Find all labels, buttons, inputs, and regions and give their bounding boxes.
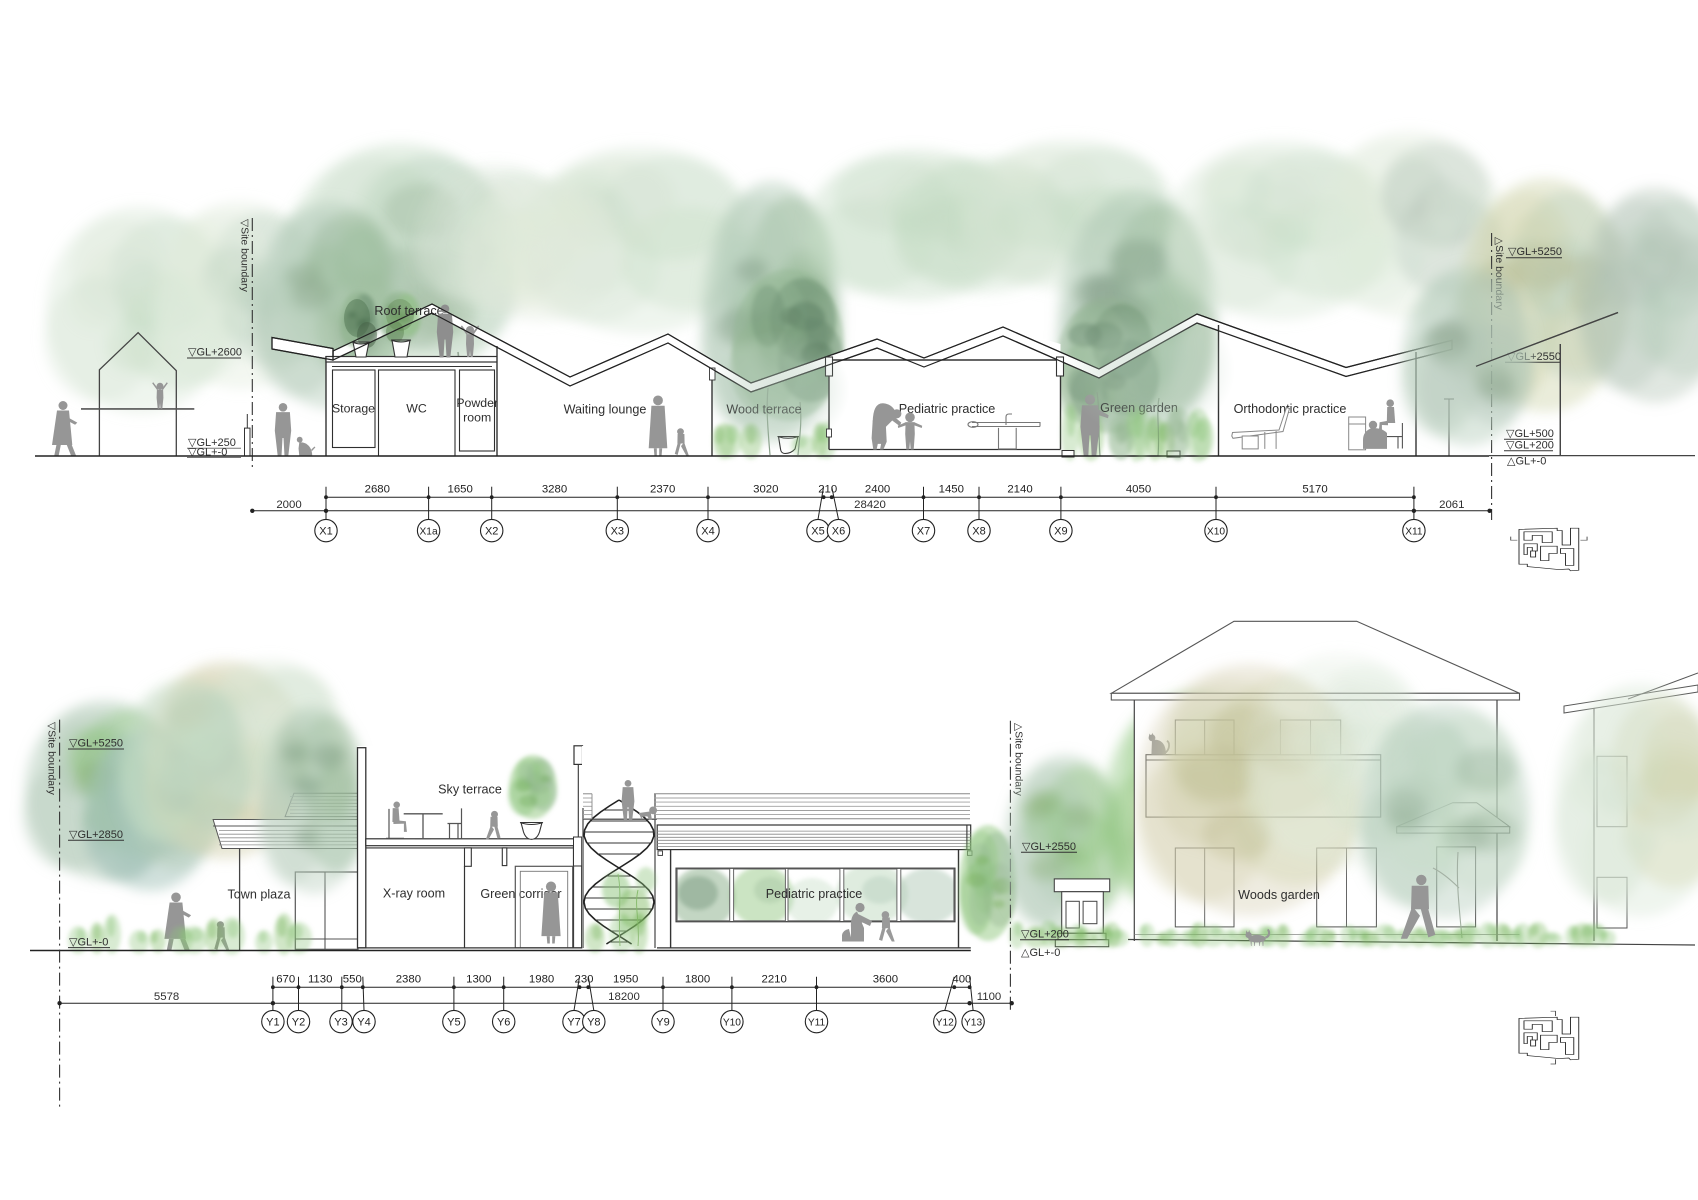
svg-text:▽GL+-0: ▽GL+-0 — [69, 936, 108, 948]
svg-text:2140: 2140 — [1007, 484, 1032, 496]
svg-text:Y9: Y9 — [656, 1017, 669, 1029]
svg-text:28420: 28420 — [854, 499, 886, 511]
svg-text:X9: X9 — [1054, 526, 1067, 538]
svg-text:2680: 2680 — [365, 484, 390, 496]
svg-text:▽GL+200: ▽GL+200 — [1506, 440, 1554, 452]
svg-text:room: room — [463, 411, 491, 425]
svg-text:Y5: Y5 — [447, 1017, 460, 1029]
svg-text:▽GL+5250: ▽GL+5250 — [69, 738, 123, 750]
svg-text:△GL+-0: △GL+-0 — [1507, 456, 1546, 468]
svg-text:X5: X5 — [811, 526, 824, 538]
svg-text:▽GL+5250: ▽GL+5250 — [1508, 246, 1562, 258]
svg-text:X2: X2 — [485, 526, 498, 538]
svg-text:2061: 2061 — [1439, 499, 1464, 511]
svg-text:1300: 1300 — [466, 974, 491, 986]
svg-text:Y6: Y6 — [497, 1017, 510, 1029]
svg-text:Storage: Storage — [332, 402, 375, 416]
svg-text:WC: WC — [406, 402, 427, 416]
svg-text:X6: X6 — [832, 526, 845, 538]
svg-text:550: 550 — [343, 974, 362, 986]
svg-text:△GL+-0: △GL+-0 — [1021, 947, 1060, 959]
svg-text:3020: 3020 — [753, 484, 778, 496]
svg-text:400: 400 — [952, 974, 971, 986]
svg-text:▽GL+2850: ▽GL+2850 — [69, 829, 123, 841]
svg-text:1650: 1650 — [448, 484, 473, 496]
svg-text:Y1: Y1 — [266, 1017, 279, 1029]
svg-text:Y3: Y3 — [334, 1017, 347, 1029]
svg-text:X8: X8 — [972, 526, 985, 538]
svg-text:Town plaza: Town plaza — [227, 888, 290, 902]
svg-text:210: 210 — [818, 484, 837, 496]
svg-text:Y2: Y2 — [292, 1017, 305, 1029]
svg-text:Y13: Y13 — [964, 1018, 982, 1029]
svg-text:Waiting lounge: Waiting lounge — [564, 403, 647, 417]
svg-text:5170: 5170 — [1302, 484, 1327, 496]
svg-text:1450: 1450 — [939, 484, 964, 496]
svg-text:▽Site boundary: ▽Site boundary — [239, 219, 251, 293]
svg-text:2370: 2370 — [650, 484, 675, 496]
svg-text:4050: 4050 — [1126, 484, 1151, 496]
svg-text:5578: 5578 — [154, 991, 179, 1003]
svg-text:▽GL+2550: ▽GL+2550 — [1022, 841, 1076, 853]
svg-text:X7: X7 — [917, 526, 930, 538]
svg-text:2400: 2400 — [865, 484, 890, 496]
svg-text:230: 230 — [574, 974, 593, 986]
svg-text:X11: X11 — [1405, 527, 1423, 538]
svg-text:X4: X4 — [701, 526, 714, 538]
svg-text:Powder: Powder — [456, 396, 498, 410]
svg-text:Roof terrace: Roof terrace — [374, 304, 443, 318]
svg-text:Orthodontic practice: Orthodontic practice — [1234, 402, 1347, 416]
svg-text:Woods garden: Woods garden — [1238, 888, 1320, 902]
svg-text:X3: X3 — [611, 526, 624, 538]
svg-text:Pediatric practice: Pediatric practice — [766, 887, 863, 901]
svg-text:Y11: Y11 — [808, 1018, 826, 1029]
svg-text:2380: 2380 — [396, 974, 421, 986]
svg-text:1950: 1950 — [613, 974, 638, 986]
svg-text:18200: 18200 — [608, 991, 640, 1003]
svg-text:Y4: Y4 — [357, 1017, 370, 1029]
svg-text:▽GL+200: ▽GL+200 — [1021, 929, 1069, 941]
svg-text:Y12: Y12 — [936, 1018, 954, 1029]
svg-text:Sky terrace: Sky terrace — [438, 783, 502, 797]
svg-text:X1a: X1a — [420, 527, 438, 538]
svg-text:3280: 3280 — [542, 484, 567, 496]
svg-text:2000: 2000 — [276, 499, 301, 511]
svg-text:1130: 1130 — [308, 974, 333, 986]
svg-text:▽GL+2600: ▽GL+2600 — [188, 347, 242, 359]
svg-text:▽Site boundary: ▽Site boundary — [46, 722, 58, 796]
svg-text:X1: X1 — [319, 526, 332, 538]
svg-text:1100: 1100 — [977, 991, 1002, 1003]
svg-text:Y7: Y7 — [567, 1017, 580, 1029]
svg-text:X-ray room: X-ray room — [383, 887, 445, 901]
svg-text:3600: 3600 — [873, 974, 898, 986]
svg-text:Y8: Y8 — [587, 1017, 600, 1029]
svg-text:1800: 1800 — [685, 974, 710, 986]
svg-text:▽GL+500: ▽GL+500 — [1506, 428, 1554, 440]
svg-text:2210: 2210 — [762, 974, 787, 986]
svg-text:X10: X10 — [1207, 527, 1225, 538]
svg-text:670: 670 — [276, 974, 295, 986]
svg-text:1980: 1980 — [529, 974, 554, 986]
svg-text:Y10: Y10 — [723, 1018, 741, 1029]
